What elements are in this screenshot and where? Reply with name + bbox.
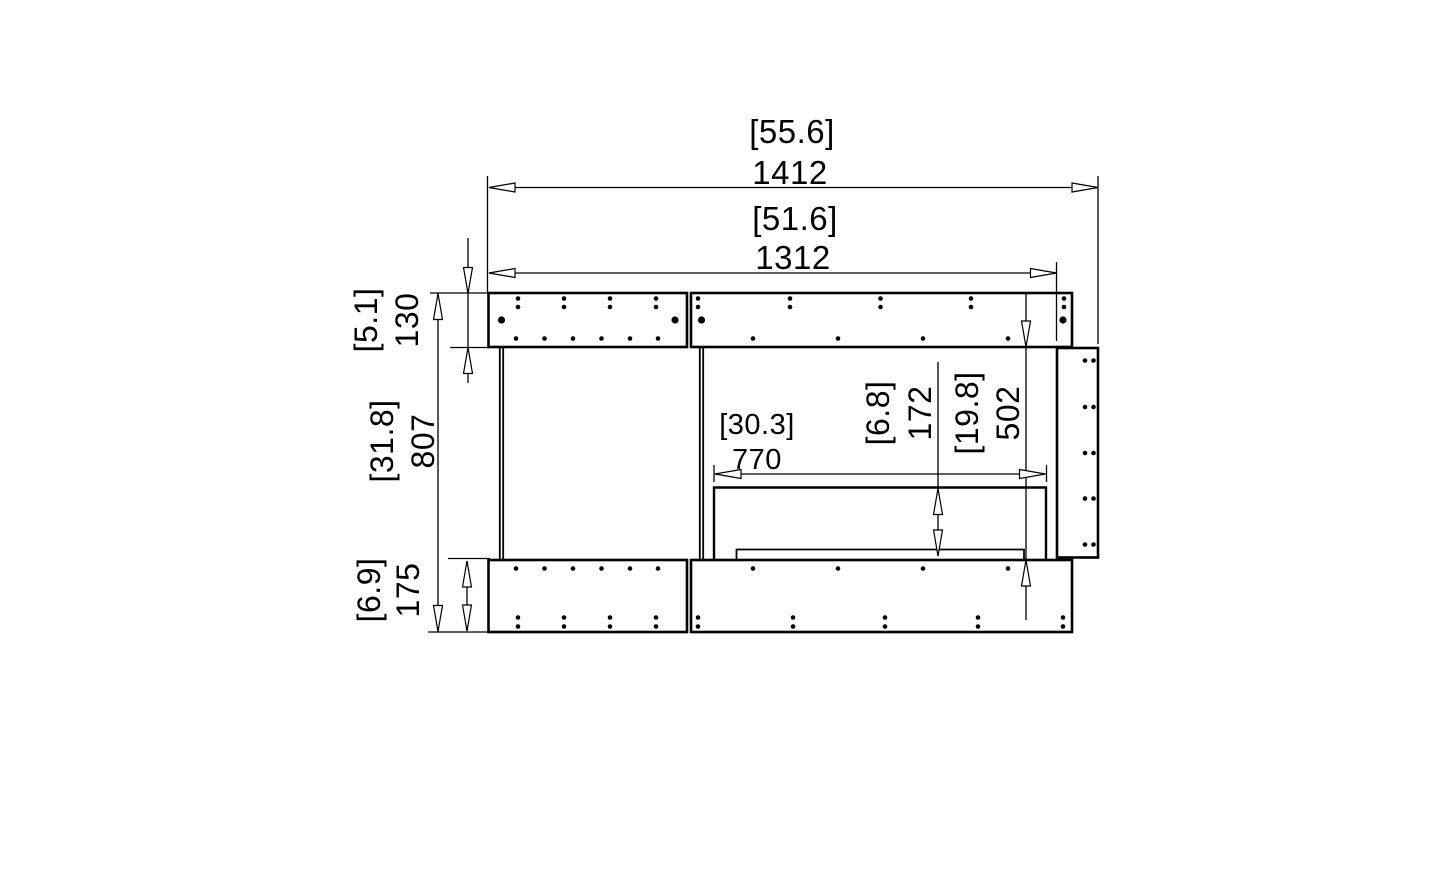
dimension-arrowhead — [434, 294, 443, 320]
label-overall-height-mm: 807 — [405, 414, 441, 469]
base-panel-left-plate — [489, 560, 688, 632]
screw-dot — [628, 566, 633, 571]
screw-dot — [516, 624, 521, 629]
screw-dot — [542, 566, 547, 571]
screw-dot — [969, 305, 974, 310]
screw-dot — [1061, 615, 1066, 620]
screw-dot — [1091, 358, 1096, 363]
label-base-height-mm: 175 — [390, 563, 426, 618]
label-top-panel-height-mm: 130 — [389, 293, 425, 348]
screw-dot — [696, 624, 701, 629]
screw-dot — [1083, 405, 1088, 410]
screw-dot — [788, 305, 793, 310]
dimension-arrowhead — [489, 183, 515, 192]
screw-dot — [654, 296, 659, 301]
firebox-structure — [489, 293, 1099, 632]
screw-dot — [514, 566, 519, 571]
label-internal-width-mm: 1312 — [755, 239, 830, 276]
label-base-height-inches: [6.9] — [351, 558, 387, 623]
screw-dot — [1062, 296, 1067, 301]
screw-dot — [1083, 542, 1088, 547]
screw-dot — [516, 615, 521, 620]
left-wall — [500, 348, 503, 560]
screw-dot — [836, 566, 841, 571]
screw-dot — [1091, 451, 1096, 456]
screw-dot — [969, 296, 974, 301]
dimension-arrowhead — [463, 605, 472, 631]
screw-dot — [562, 305, 567, 310]
screw-dot — [788, 296, 793, 301]
screw-dot — [1083, 496, 1088, 501]
screw-dot — [1091, 542, 1096, 547]
screw-dot — [562, 624, 567, 629]
dimension-arrowhead — [464, 268, 473, 294]
screw-dot — [608, 305, 613, 310]
dimension-labels: [55.6] 1412 [51.6] 1312 [5.1] 130 [31.8]… — [348, 113, 1026, 622]
screw-dot — [1091, 405, 1096, 410]
screw-dot — [1061, 624, 1066, 629]
screw-dot — [836, 336, 841, 341]
screw-dot — [1062, 305, 1067, 310]
screw-dot — [791, 624, 796, 629]
screw-dot — [1091, 496, 1096, 501]
dimension-arrowhead — [1022, 321, 1031, 347]
screw-dot — [599, 566, 604, 571]
screw-dot — [696, 615, 701, 620]
screw-dot — [883, 624, 888, 629]
dimension-arrowhead — [1022, 560, 1031, 586]
screw-dot — [608, 296, 613, 301]
screw-dot — [599, 336, 604, 341]
screw-dot — [1006, 336, 1011, 341]
dimension-arrowhead — [934, 530, 943, 556]
screw-dot — [878, 296, 883, 301]
screw-dot — [516, 296, 521, 301]
screw-dot — [696, 296, 701, 301]
screw-dot — [921, 336, 926, 341]
screw-dot — [571, 566, 576, 571]
screw-dot — [976, 615, 981, 620]
dimension-arrowhead — [934, 489, 943, 515]
label-overall-height-inches: [31.8] — [364, 399, 400, 482]
dimension-arrowhead — [463, 561, 472, 587]
screw-dot — [654, 615, 659, 620]
label-top-panel-height-inches: [5.1] — [348, 288, 384, 353]
middle-divider — [700, 348, 703, 560]
screw-dot — [878, 305, 883, 310]
screw-dot — [1006, 566, 1011, 571]
screw-dot — [696, 305, 701, 310]
screw-hole-large — [671, 316, 678, 323]
label-internal-width-inches: [51.6] — [752, 200, 838, 237]
label-burner-width-mm: 770 — [732, 444, 782, 476]
fireplace-front-elevation-svg: [55.6] 1412 [51.6] 1312 [5.1] 130 [31.8]… — [0, 0, 1445, 893]
screw-dot — [562, 615, 567, 620]
screw-dot — [514, 336, 519, 341]
screw-dot — [656, 336, 661, 341]
label-opening-height-inches: [19.8] — [949, 371, 985, 454]
screw-dot — [656, 566, 661, 571]
screw-dot — [751, 336, 756, 341]
label-overall-width-mm: 1412 — [752, 154, 827, 191]
screw-dot — [791, 615, 796, 620]
label-burner-width-inches: [30.3] — [719, 409, 795, 441]
screw-dot — [1083, 451, 1088, 456]
screw-dot — [628, 336, 633, 341]
label-opening-height-mm: 502 — [990, 386, 1026, 441]
screw-dot — [751, 566, 756, 571]
label-overall-width-inches: [55.6] — [749, 113, 835, 150]
burner-tray — [737, 550, 1025, 561]
screw-dot — [976, 624, 981, 629]
base-panel-right-plate — [691, 560, 1072, 632]
screw-hole-large — [498, 316, 505, 323]
dimension-arrowhead — [1020, 470, 1046, 479]
dimension-arrowhead — [464, 348, 473, 374]
screw-dot — [516, 305, 521, 310]
label-burner-to-floor-mm: 172 — [902, 386, 938, 441]
screw-dot — [883, 615, 888, 620]
screw-dot — [608, 615, 613, 620]
screw-hole-large — [1059, 316, 1066, 323]
label-burner-to-floor-inches: [6.8] — [860, 381, 896, 446]
dimension-arrowhead — [489, 269, 515, 278]
top-panel-right-plate — [691, 293, 1072, 347]
dimension-arrowhead — [434, 606, 443, 632]
screw-dot — [921, 566, 926, 571]
screw-dot — [562, 296, 567, 301]
screw-hole-large — [698, 316, 705, 323]
screw-dot — [608, 624, 613, 629]
technical-drawing-canvas: [55.6] 1412 [51.6] 1312 [5.1] 130 [31.8]… — [0, 0, 1445, 893]
screw-dot — [654, 305, 659, 310]
screw-dot — [571, 336, 576, 341]
screw-dot — [1083, 358, 1088, 363]
dimension-arrowhead — [1031, 269, 1057, 278]
screw-dot — [654, 624, 659, 629]
dimension-arrowhead — [1072, 183, 1098, 192]
screw-dot — [542, 336, 547, 341]
